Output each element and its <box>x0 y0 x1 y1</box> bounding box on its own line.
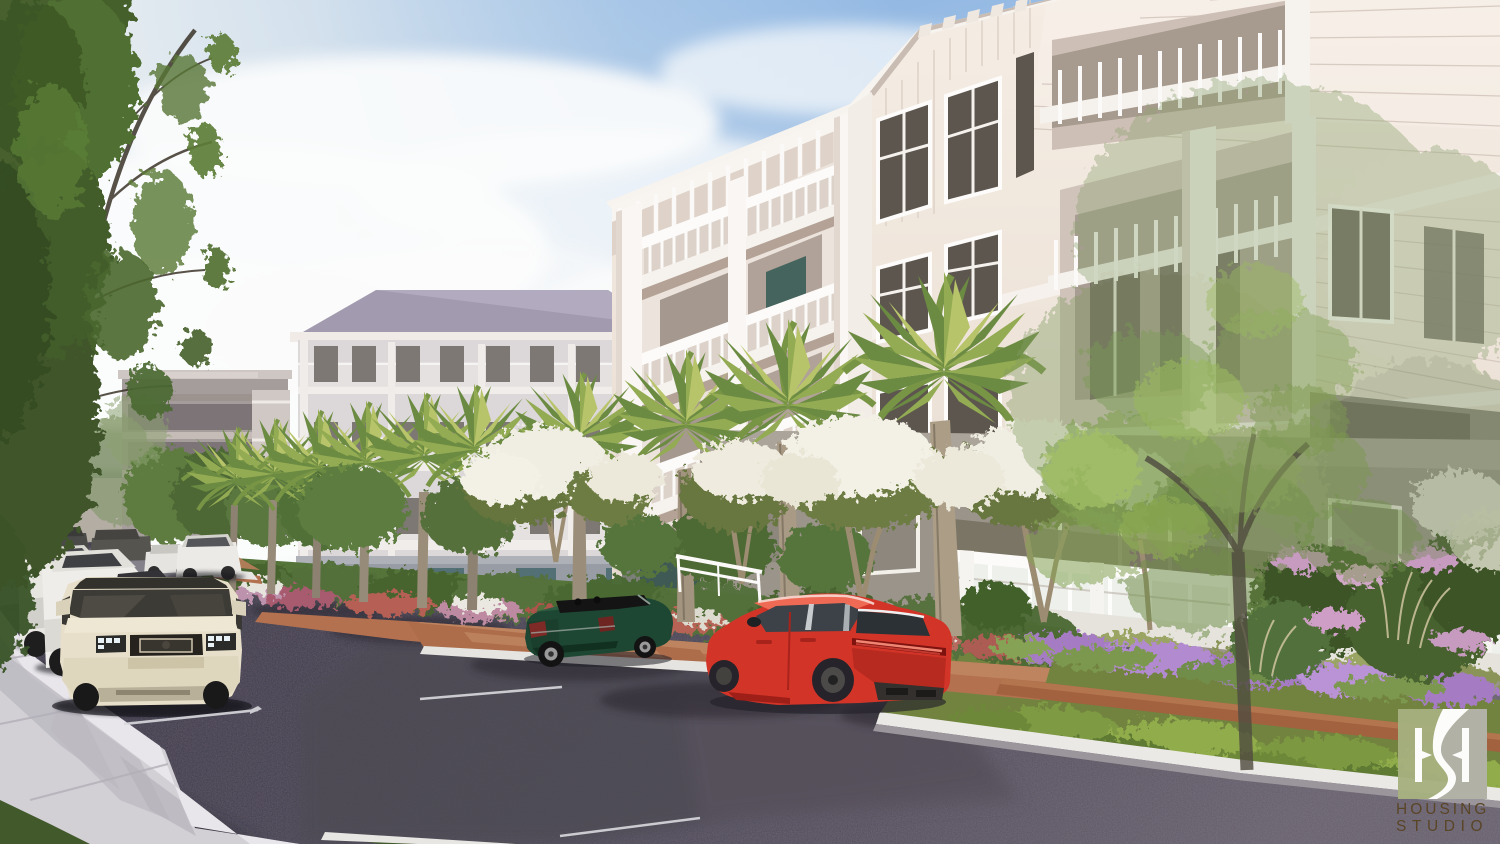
svg-text:HOUSING: HOUSING <box>1396 801 1489 818</box>
svg-text:STUDIO: STUDIO <box>1396 818 1488 835</box>
